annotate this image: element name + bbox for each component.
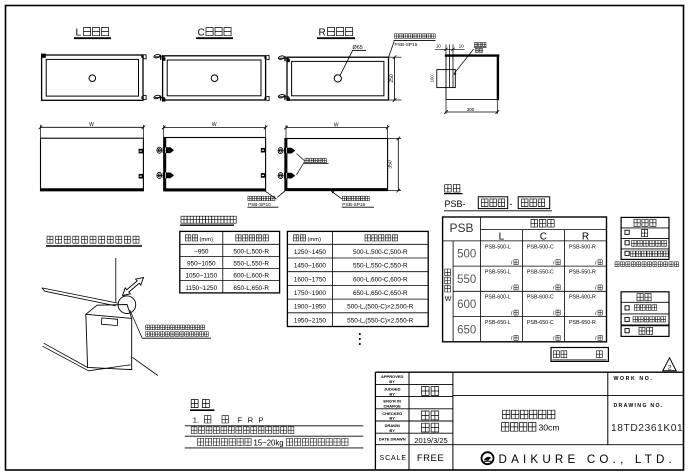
svg-text:(mm): (mm)	[308, 237, 322, 243]
svg-text:18TD2361K01: 18TD2361K01	[611, 423, 683, 434]
svg-text:WORK NO.: WORK NO.	[614, 376, 654, 382]
svg-text:C: C	[198, 28, 205, 39]
svg-text:100: 100	[430, 75, 435, 83]
svg-text:DRAWING NO.: DRAWING NO.	[614, 403, 664, 409]
svg-text:PSB-600-L: PSB-600-L	[485, 295, 511, 301]
svg-text:250: 250	[389, 74, 395, 83]
svg-text:PSB-600-C: PSB-600-C	[527, 295, 554, 301]
svg-text:R: R	[319, 28, 326, 39]
svg-text:15~20kg: 15~20kg	[254, 439, 284, 448]
svg-text:(mm): (mm)	[200, 237, 214, 243]
svg-text:W: W	[89, 122, 94, 128]
svg-text:650: 650	[457, 324, 476, 336]
svg-text:500-L,(500-C)×2,500-R: 500-L,(500-C)×2,500-R	[347, 304, 414, 311]
svg-text:PSB-650-C: PSB-650-C	[527, 320, 554, 326]
svg-text:L: L	[499, 231, 505, 242]
svg-text:950~1050: 950~1050	[187, 261, 216, 268]
svg-text:300: 300	[467, 107, 475, 112]
svg-text:BY: BY	[389, 379, 395, 384]
svg-text:550: 550	[457, 274, 476, 286]
svg-text:PSB-: PSB-	[445, 199, 466, 209]
svg-text:PSB: PSB	[449, 221, 473, 235]
svg-text:2: 2	[668, 364, 672, 371]
svg-text:600-L,600-R: 600-L,600-R	[233, 273, 269, 280]
svg-text:1950~2150: 1950~2150	[294, 317, 327, 324]
svg-text:PSB-500-R: PSB-500-R	[569, 244, 596, 250]
svg-text:1900~1950: 1900~1950	[294, 304, 327, 311]
svg-text:350: 350	[388, 160, 394, 169]
svg-text:600: 600	[457, 299, 476, 311]
svg-text:PSB-600-R: PSB-600-R	[569, 295, 596, 301]
svg-text:650-L,650-R: 650-L,650-R	[233, 285, 269, 292]
svg-text:DAIKURE CO., LTD.: DAIKURE CO., LTD.	[499, 453, 676, 466]
svg-text:L: L	[76, 28, 82, 39]
svg-text:BY: BY	[389, 416, 395, 421]
svg-text:1150~1250: 1150~1250	[185, 285, 217, 292]
svg-text:30cm: 30cm	[539, 423, 560, 433]
svg-text:1600~1750: 1600~1750	[294, 276, 327, 283]
svg-text:PSB-650-L: PSB-650-L	[485, 320, 511, 326]
svg-text:600-L,600-C,600-R: 600-L,600-C,600-R	[353, 276, 408, 283]
svg-text:Ø65: Ø65	[353, 45, 363, 51]
svg-text:BY: BY	[389, 391, 395, 396]
svg-text:PSB-500-C: PSB-500-C	[527, 244, 554, 250]
svg-text:-: -	[510, 199, 513, 209]
svg-text:500-L,500-R: 500-L,500-R	[233, 249, 269, 256]
svg-text:1750~1900: 1750~1900	[294, 290, 327, 297]
svg-text:550-L,(550-C)×2,550-R: 550-L,(550-C)×2,550-R	[347, 317, 414, 324]
svg-text:PSB-550-L: PSB-550-L	[485, 270, 511, 276]
svg-text:PSB-550-R: PSB-550-R	[569, 270, 596, 276]
svg-text:~950: ~950	[194, 249, 209, 256]
svg-text:650-L,650-C,650-R: 650-L,650-C,650-R	[353, 290, 408, 297]
svg-text:W: W	[334, 122, 339, 128]
svg-text:1.: 1.	[193, 415, 199, 424]
svg-text:1250~1450: 1250~1450	[294, 249, 327, 256]
svg-text:BY: BY	[389, 428, 395, 433]
svg-text:1050~1150: 1050~1150	[185, 273, 217, 280]
svg-text:10: 10	[436, 43, 441, 48]
svg-text:2019/3/25: 2019/3/25	[414, 436, 447, 445]
svg-text:PSB-500-L: PSB-500-L	[485, 244, 511, 250]
svg-text:W: W	[212, 122, 217, 128]
svg-text:PSB-550-C: PSB-550-C	[527, 270, 554, 276]
svg-text:500: 500	[457, 249, 476, 261]
svg-text:C: C	[540, 231, 547, 242]
svg-text:550-L,550-R: 550-L,550-R	[233, 261, 269, 268]
svg-text:FREE: FREE	[417, 453, 444, 464]
svg-text:DATE DRAWN: DATE DRAWN	[379, 437, 406, 442]
svg-text:PSB-SP15: PSB-SP15	[395, 42, 418, 48]
svg-text:W: W	[445, 296, 452, 303]
svg-text:R: R	[582, 231, 589, 242]
svg-text:1450~1600: 1450~1600	[294, 263, 327, 270]
svg-text:PSB-650-R: PSB-650-R	[569, 320, 596, 326]
svg-text:500-L,500-C,500-R: 500-L,500-C,500-R	[353, 249, 408, 256]
svg-text:SCALE: SCALE	[380, 455, 407, 462]
svg-text:550-L,550-C,550-R: 550-L,550-C,550-R	[353, 263, 408, 270]
svg-text:10: 10	[459, 43, 464, 48]
svg-text:FRP: FRP	[238, 415, 270, 424]
svg-text:CHARGE: CHARGE	[384, 404, 402, 409]
